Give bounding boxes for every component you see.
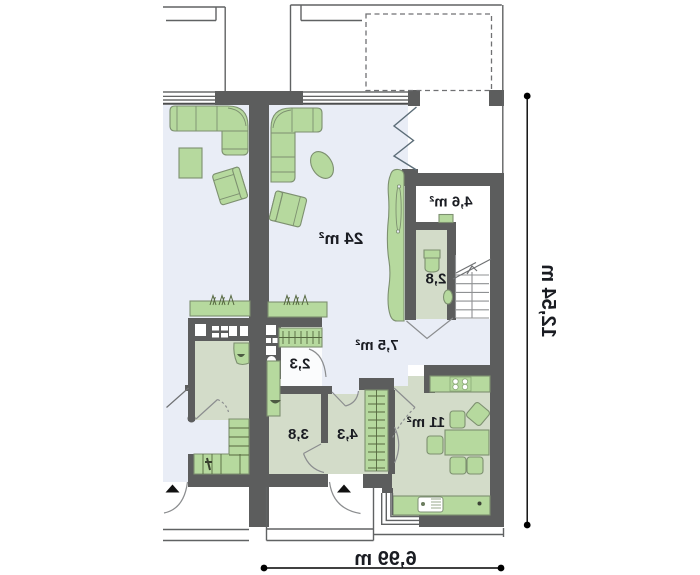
svg-text:2,8: 2,8	[426, 271, 447, 288]
svg-text:11 m²: 11 m²	[407, 414, 445, 431]
svg-text:2,3: 2,3	[290, 356, 311, 373]
svg-text:6,99 m: 6,99 m	[354, 548, 416, 570]
svg-text:24 m²: 24 m²	[318, 229, 363, 248]
svg-text:4,6 m²: 4,6 m²	[429, 194, 472, 211]
svg-text:3,8: 3,8	[288, 426, 309, 443]
svg-text:7,5 m²: 7,5 m²	[355, 337, 398, 354]
svg-text:12,54 m: 12,54 m	[537, 264, 559, 337]
svg-text:4,3: 4,3	[337, 426, 358, 443]
